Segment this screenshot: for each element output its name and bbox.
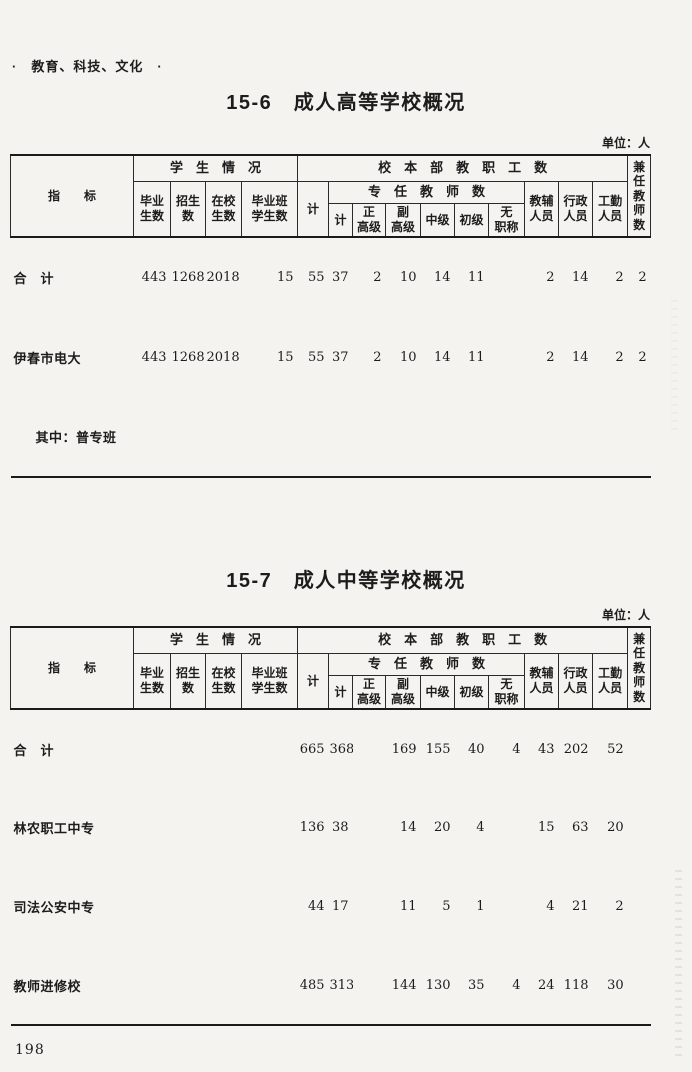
cell-graduating-class: [242, 397, 298, 477]
cell-teaching-aux: 15: [525, 788, 559, 867]
col-header-total-fulltime: 计: [329, 203, 353, 237]
col-header-enrollment: 招生 数: [171, 653, 206, 709]
table-row-forestry-workers-school: 林农职工中专 136 38 14 20 4 15 63 20: [11, 788, 651, 867]
cell-enrollment: [171, 709, 206, 788]
col-header-teaching-aux: 教辅 人员: [525, 653, 559, 709]
cell-total-staff: 665: [298, 709, 329, 788]
col-header-graduates: 毕业 生数: [134, 181, 171, 237]
cell-assoc-senior: 169: [386, 709, 421, 788]
cell-logistics: 20: [593, 788, 628, 867]
cell-junior: 11: [455, 317, 489, 397]
cell-total-fulltime: 17: [329, 867, 353, 946]
cell-teaching-aux: 4: [525, 867, 559, 946]
table-row-regular-college-class: 其中：普专班: [11, 397, 651, 477]
cell-senior: [353, 709, 386, 788]
cell-senior: [353, 788, 386, 867]
unit-label-table-1: 单位：人: [602, 134, 650, 151]
col-header-admin-staff: 行政 人员: [559, 181, 593, 237]
cell-graduates: [134, 867, 171, 946]
col-group-student-situation: 学 生 情 况: [134, 155, 298, 181]
row-label: 合 计: [11, 237, 134, 317]
cell-teaching-aux: [525, 397, 559, 477]
scan-artifact: [675, 870, 682, 1060]
cell-total-fulltime: 313: [329, 946, 353, 1025]
cell-parttime: [628, 709, 651, 788]
section-header: · 教育、科技、文化 ·: [12, 56, 163, 75]
cell-no-title: 4: [489, 709, 525, 788]
cell-assoc-senior: 14: [386, 788, 421, 867]
col-header-junior: 初级: [455, 203, 489, 237]
row-label: 其中：普专班: [11, 397, 134, 477]
cell-logistics: [593, 397, 628, 477]
unit-label-table-2: 单位：人: [602, 606, 650, 623]
cell-junior: 11: [455, 237, 489, 317]
cell-enrollment: [171, 867, 206, 946]
col-header-indicator: 指 标: [11, 627, 134, 709]
cell-parttime: [628, 788, 651, 867]
cell-junior: 35: [455, 946, 489, 1025]
cell-admin: 202: [559, 709, 593, 788]
table-row-total: 合 计 443 1268 2018 15 55 37 2 10 14 11 2 …: [11, 237, 651, 317]
scanned-yearbook-page: · 教育、科技、文化 · 15-6 成人高等学校概况 单位：人 指 标 学 生 …: [0, 0, 692, 1072]
scan-artifact: [671, 300, 678, 430]
row-label: 林农职工中专: [11, 788, 134, 867]
table-15-7: 指 标 学 生 情 况 校 本 部 教 职 工 数 兼 任 教 师 数 毕业 生…: [10, 626, 651, 1026]
col-header-admin-staff: 行政 人员: [559, 653, 593, 709]
cell-junior: 4: [455, 788, 489, 867]
cell-senior: [353, 946, 386, 1025]
cell-current-students: 2018: [206, 317, 242, 397]
table-row-justice-police-school: 司法公安中专 44 17 11 5 1 4 21 2: [11, 867, 651, 946]
cell-parttime: [628, 867, 651, 946]
cell-teaching-aux: 2: [525, 317, 559, 397]
cell-intermediate: 155: [421, 709, 455, 788]
cell-admin: 118: [559, 946, 593, 1025]
col-header-junior: 初级: [455, 675, 489, 709]
col-header-intermediate: 中级: [421, 675, 455, 709]
col-header-logistics-staff: 工勤 人员: [593, 653, 628, 709]
col-header-current-students: 在校 生数: [206, 653, 242, 709]
cell-graduates: [134, 788, 171, 867]
cell-intermediate: 14: [421, 237, 455, 317]
col-header-logistics-staff: 工勤 人员: [593, 181, 628, 237]
cell-parttime: 2: [628, 317, 651, 397]
cell-junior: [455, 397, 489, 477]
cell-graduates: [134, 397, 171, 477]
cell-graduating-class: [242, 946, 298, 1025]
cell-parttime: [628, 397, 651, 477]
cell-intermediate: 20: [421, 788, 455, 867]
cell-intermediate: 14: [421, 317, 455, 397]
cell-no-title: [489, 867, 525, 946]
col-header-indicator: 指 标: [11, 155, 134, 237]
col-header-assoc-senior: 副 高级: [386, 675, 421, 709]
table-15-7-title: 15-7 成人中等学校概况: [0, 564, 692, 593]
cell-current-students: 2018: [206, 237, 242, 317]
cell-logistics: 30: [593, 946, 628, 1025]
cell-total-fulltime: 368: [329, 709, 353, 788]
cell-total-fulltime: [329, 397, 353, 477]
cell-admin: 14: [559, 237, 593, 317]
cell-graduating-class: [242, 788, 298, 867]
table-15-6-title: 15-6 成人高等学校概况: [0, 86, 692, 115]
cell-teaching-aux: 2: [525, 237, 559, 317]
cell-current-students: [206, 709, 242, 788]
cell-total-fulltime: 37: [329, 317, 353, 397]
cell-no-title: 4: [489, 946, 525, 1025]
cell-enrollment: [171, 946, 206, 1025]
row-label: 伊春市电大: [11, 317, 134, 397]
col-group-fulltime-teachers: 专 任 教 师 数: [329, 181, 525, 203]
cell-teaching-aux: 24: [525, 946, 559, 1025]
cell-assoc-senior: 11: [386, 867, 421, 946]
col-group-campus-staff: 校 本 部 教 职 工 数: [298, 627, 628, 653]
col-header-graduating-class: 毕业班 学生数: [242, 181, 298, 237]
page-number: 198: [15, 1042, 45, 1058]
table-header: 指 标 学 生 情 况 校 本 部 教 职 工 数 兼 任 教 师 数 毕业 生…: [11, 155, 651, 237]
cell-current-students: [206, 867, 242, 946]
col-header-total-fulltime: 计: [329, 675, 353, 709]
col-group-campus-staff: 校 本 部 教 职 工 数: [298, 155, 628, 181]
cell-senior: [353, 867, 386, 946]
table-header: 指 标 学 生 情 况 校 本 部 教 职 工 数 兼 任 教 师 数 毕业 生…: [11, 627, 651, 709]
col-header-graduates: 毕业 生数: [134, 653, 171, 709]
cell-total-staff: 136: [298, 788, 329, 867]
cell-total-fulltime: 37: [329, 237, 353, 317]
col-header-graduating-class: 毕业班 学生数: [242, 653, 298, 709]
col-header-total-staff: 计: [298, 181, 329, 237]
table-15-6: 指 标 学 生 情 况 校 本 部 教 职 工 数 兼 任 教 师 数 毕业 生…: [10, 154, 651, 478]
table-row-teacher-training-school: 教师进修校 485 313 144 130 35 4 24 118 30: [11, 946, 651, 1025]
col-header-assoc-senior: 副 高级: [386, 203, 421, 237]
cell-no-title: [489, 788, 525, 867]
cell-admin: 63: [559, 788, 593, 867]
row-label: 教师进修校: [11, 946, 134, 1025]
cell-admin: 14: [559, 317, 593, 397]
col-header-parttime-teachers: 兼 任 教 师 数: [628, 627, 651, 709]
cell-logistics: 2: [593, 237, 628, 317]
cell-assoc-senior: 10: [386, 237, 421, 317]
cell-graduating-class: 15: [242, 237, 298, 317]
cell-total-staff: 44: [298, 867, 329, 946]
table-row-total: 合 计 665 368 169 155 40 4 43 202 52: [11, 709, 651, 788]
cell-enrollment: [171, 788, 206, 867]
cell-logistics: 52: [593, 709, 628, 788]
col-header-enrollment: 招生 数: [171, 181, 206, 237]
cell-logistics: 2: [593, 867, 628, 946]
cell-assoc-senior: 10: [386, 317, 421, 397]
cell-teaching-aux: 43: [525, 709, 559, 788]
col-header-parttime-teachers: 兼 任 教 师 数: [628, 155, 651, 237]
cell-current-students: [206, 788, 242, 867]
cell-junior: 1: [455, 867, 489, 946]
cell-assoc-senior: 144: [386, 946, 421, 1025]
cell-graduates: [134, 709, 171, 788]
row-label: 合 计: [11, 709, 134, 788]
cell-enrollment: 1268: [171, 317, 206, 397]
cell-graduates: [134, 946, 171, 1025]
col-group-student-situation: 学 生 情 况: [134, 627, 298, 653]
cell-parttime: [628, 946, 651, 1025]
cell-total-staff: 55: [298, 317, 329, 397]
col-header-no-title: 无 职称: [489, 203, 525, 237]
cell-admin: 21: [559, 867, 593, 946]
cell-senior: 2: [353, 237, 386, 317]
cell-assoc-senior: [386, 397, 421, 477]
cell-total-staff: [298, 397, 329, 477]
cell-intermediate: 130: [421, 946, 455, 1025]
col-header-senior: 正 高级: [353, 675, 386, 709]
col-header-current-students: 在校 生数: [206, 181, 242, 237]
cell-enrollment: 1268: [171, 237, 206, 317]
col-header-intermediate: 中级: [421, 203, 455, 237]
cell-graduating-class: 15: [242, 317, 298, 397]
cell-senior: [353, 397, 386, 477]
col-header-total-staff: 计: [298, 653, 329, 709]
cell-total-fulltime: 38: [329, 788, 353, 867]
cell-intermediate: 5: [421, 867, 455, 946]
cell-total-staff: 485: [298, 946, 329, 1025]
cell-parttime: 2: [628, 237, 651, 317]
cell-graduating-class: [242, 709, 298, 788]
col-group-fulltime-teachers: 专 任 教 师 数: [329, 653, 525, 675]
cell-no-title: [489, 237, 525, 317]
cell-logistics: 2: [593, 317, 628, 397]
row-label: 司法公安中专: [11, 867, 134, 946]
cell-enrollment: [171, 397, 206, 477]
cell-graduates: 443: [134, 237, 171, 317]
cell-no-title: [489, 317, 525, 397]
col-header-no-title: 无 职称: [489, 675, 525, 709]
cell-junior: 40: [455, 709, 489, 788]
col-header-senior: 正 高级: [353, 203, 386, 237]
cell-graduates: 443: [134, 317, 171, 397]
col-header-teaching-aux: 教辅 人员: [525, 181, 559, 237]
cell-senior: 2: [353, 317, 386, 397]
cell-no-title: [489, 397, 525, 477]
cell-intermediate: [421, 397, 455, 477]
cell-current-students: [206, 397, 242, 477]
cell-total-staff: 55: [298, 237, 329, 317]
cell-admin: [559, 397, 593, 477]
table-row-yichun-tv-university: 伊春市电大 443 1268 2018 15 55 37 2 10 14 11 …: [11, 317, 651, 397]
cell-current-students: [206, 946, 242, 1025]
cell-graduating-class: [242, 867, 298, 946]
